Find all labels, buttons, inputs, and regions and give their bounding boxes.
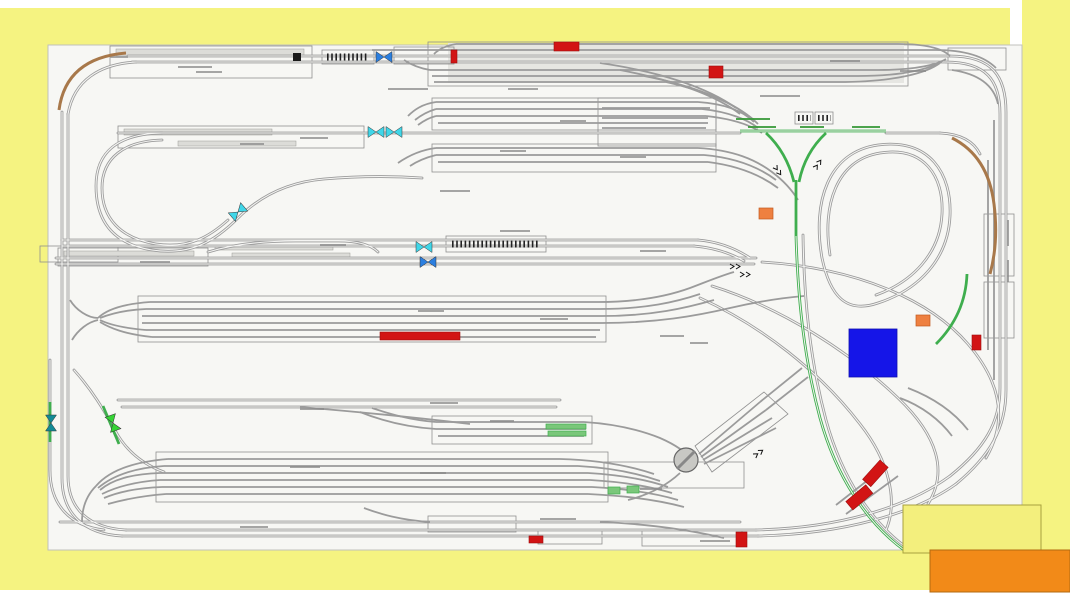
track-plan-window bbox=[0, 0, 1070, 597]
red-block[interactable] bbox=[451, 50, 457, 63]
red-block[interactable] bbox=[554, 42, 579, 51]
black-block-marker[interactable] bbox=[293, 53, 301, 61]
turntable[interactable] bbox=[674, 448, 698, 472]
legend-orange-box[interactable] bbox=[930, 550, 1070, 592]
track-plan-canvas[interactable] bbox=[0, 0, 1070, 597]
red-block[interactable] bbox=[736, 532, 747, 547]
orange-block[interactable] bbox=[916, 315, 930, 326]
red-block[interactable] bbox=[529, 536, 543, 543]
blue-square-marker[interactable] bbox=[849, 329, 897, 377]
red-platform-block[interactable] bbox=[380, 332, 460, 340]
legend-yellow-box[interactable] bbox=[903, 505, 1041, 553]
green-block[interactable] bbox=[608, 487, 620, 494]
red-block[interactable] bbox=[709, 66, 723, 78]
green-block[interactable] bbox=[546, 424, 586, 429]
green-block[interactable] bbox=[548, 431, 586, 436]
red-block[interactable] bbox=[972, 335, 981, 350]
green-block[interactable] bbox=[627, 486, 639, 493]
orange-block[interactable] bbox=[759, 208, 773, 219]
